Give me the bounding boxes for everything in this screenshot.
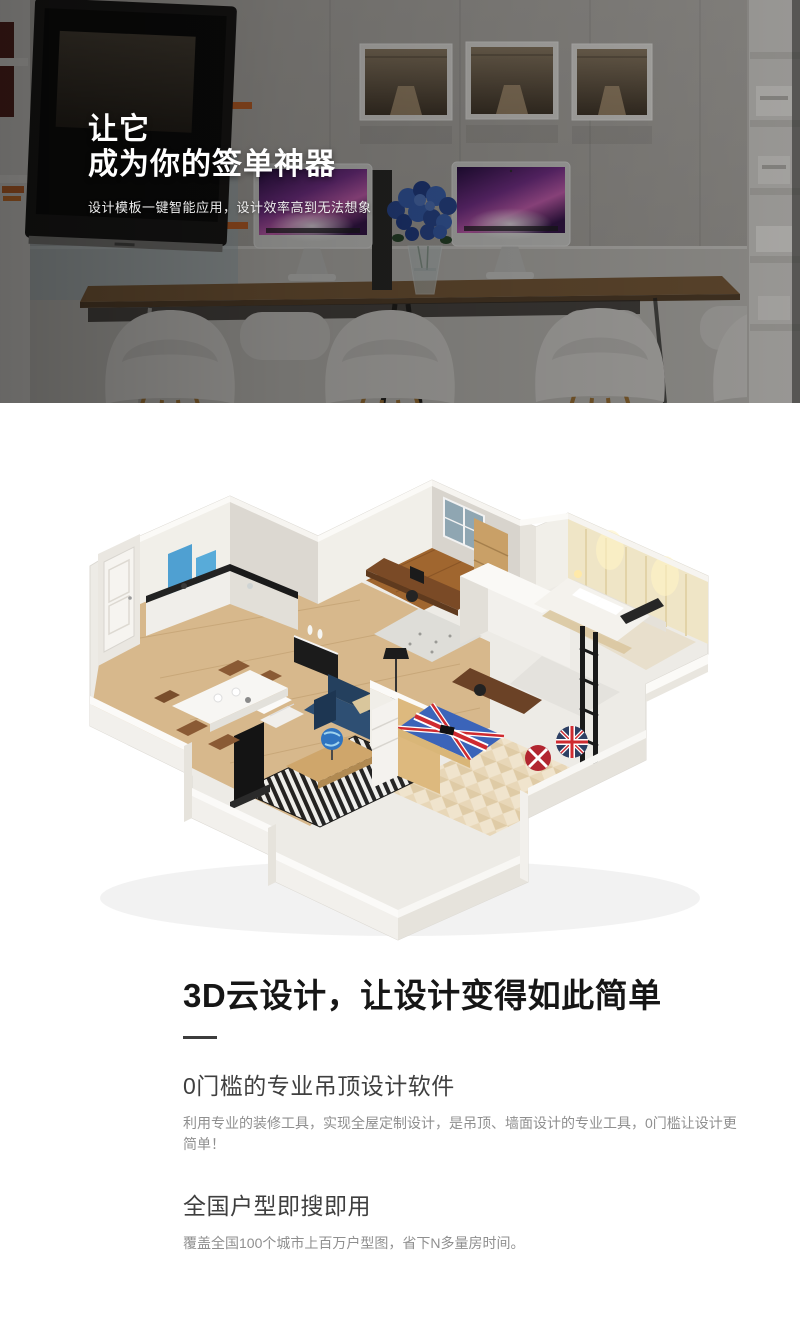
- hero-title-line2: 成为你的签单神器: [88, 147, 372, 182]
- landing-page: 让它 成为你的签单神器 设计模板一键智能应用，设计效率高到无法想象: [0, 0, 800, 1334]
- feature-ceiling-design: 0门槛的专业吊顶设计软件 利用专业的装修工具，实现全屋定制设计，是吊顶、墙面设计…: [183, 1067, 740, 1155]
- feature-desc: 覆盖全国100个城市上百万户型图，省下N多量房时间。: [183, 1233, 740, 1254]
- feature-title: 全国户型即搜即用: [183, 1187, 740, 1221]
- globe: [321, 728, 343, 750]
- floorplan-3d-illustration: [80, 458, 720, 946]
- feature-title: 0门槛的专业吊顶设计软件: [183, 1067, 740, 1101]
- hero-text-block: 让它 成为你的签单神器 设计模板一键智能应用，设计效率高到无法想象: [88, 112, 372, 216]
- hero-title-line1: 让它: [88, 112, 372, 147]
- entry-door: [98, 534, 140, 666]
- content-section: 3D云设计，让设计变得如此简单 0门槛的专业吊顶设计软件 利用专业的装修工具，实…: [0, 946, 800, 1334]
- section-heading: 3D云设计，让设计变得如此简单: [183, 976, 740, 1016]
- feature-national-floorplans: 全国户型即搜即用 覆盖全国100个城市上百万户型图，省下N多量房时间。: [183, 1187, 740, 1254]
- heading-divider: [183, 1036, 217, 1039]
- hero-banner: 让它 成为你的签单神器 设计模板一键智能应用，设计效率高到无法想象: [0, 0, 800, 403]
- feature-desc: 利用专业的装修工具，实现全屋定制设计，是吊顶、墙面设计的专业工具，0门槛让设计更…: [183, 1113, 740, 1155]
- hero-subtitle: 设计模板一键智能应用，设计效率高到无法想象: [88, 197, 372, 216]
